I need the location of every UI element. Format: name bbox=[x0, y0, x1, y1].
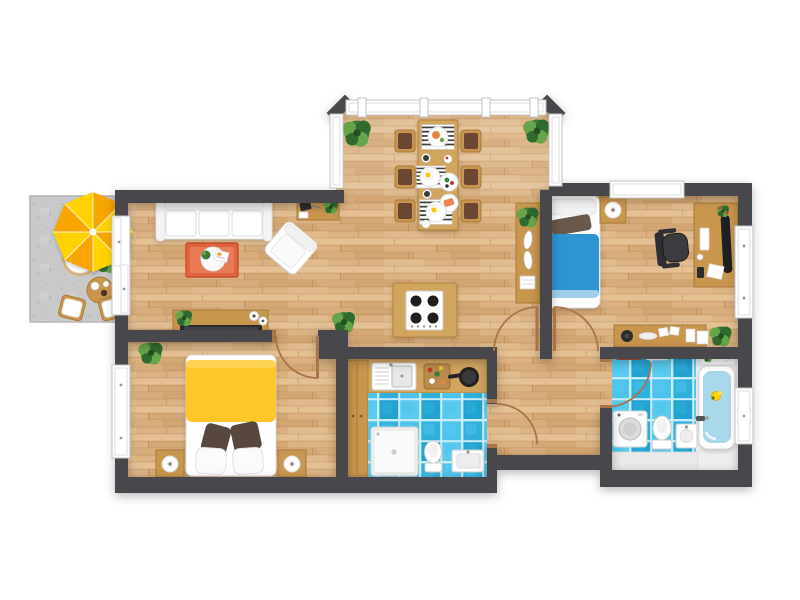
bathroom bbox=[612, 351, 738, 472]
window-mullion bbox=[358, 98, 366, 117]
shower-cabin bbox=[371, 427, 418, 476]
toilet-tank bbox=[425, 463, 442, 472]
washer-knob bbox=[618, 414, 621, 417]
wall-bathroom-top bbox=[600, 347, 752, 359]
washing-machine bbox=[613, 411, 647, 447]
sofa-cushion bbox=[199, 211, 229, 236]
blue-blanket bbox=[547, 234, 599, 298]
wall-shower-right-lower bbox=[487, 444, 497, 477]
wall-hallway-bottom bbox=[497, 455, 612, 470]
bowl bbox=[444, 155, 452, 163]
phone bbox=[697, 267, 704, 278]
box bbox=[520, 276, 535, 289]
window-mullion bbox=[530, 98, 538, 117]
bay-window-left bbox=[330, 114, 343, 188]
bay-window-band bbox=[346, 98, 546, 117]
double-bed bbox=[186, 355, 276, 476]
dining-chair bbox=[395, 166, 415, 188]
parasol-pole bbox=[90, 229, 97, 236]
white-pillow bbox=[232, 447, 264, 475]
balcony-sliding-door bbox=[112, 216, 130, 315]
papers bbox=[707, 264, 724, 280]
tap bbox=[389, 363, 393, 367]
bedside-lamp bbox=[605, 202, 621, 218]
dining-chair bbox=[461, 166, 481, 188]
yellow-blanket bbox=[186, 360, 276, 422]
coffee-cup bbox=[424, 191, 430, 197]
sofa-cushion bbox=[232, 211, 262, 236]
dining-chair bbox=[395, 130, 415, 152]
tap bbox=[466, 450, 469, 453]
sofa bbox=[156, 197, 272, 241]
bed-pillow-white bbox=[550, 199, 596, 215]
door-leaf bbox=[316, 336, 319, 378]
door-jamb bbox=[487, 444, 497, 448]
door-handle bbox=[118, 241, 121, 244]
box bbox=[669, 326, 679, 335]
white-pillow bbox=[195, 447, 227, 475]
box bbox=[658, 327, 668, 336]
dining-chair bbox=[395, 200, 415, 222]
note-paper bbox=[299, 212, 308, 218]
shower-drain bbox=[391, 449, 396, 454]
door-jamb bbox=[487, 399, 497, 403]
shower-head bbox=[376, 432, 379, 435]
wall-living-bedroom bbox=[115, 330, 276, 342]
bowl bbox=[422, 220, 430, 228]
bathtub bbox=[696, 366, 735, 449]
wall-bedroom-kitchen bbox=[336, 359, 348, 477]
door-jamb bbox=[600, 405, 612, 408]
window-bedroom-right-top bbox=[610, 181, 684, 198]
coffee-cup bbox=[423, 155, 429, 161]
book bbox=[686, 329, 695, 342]
window-bathroom bbox=[735, 388, 753, 444]
plate-salad bbox=[440, 173, 458, 191]
cutting-board bbox=[424, 364, 450, 389]
tap bbox=[685, 425, 688, 428]
sofa-armrest bbox=[156, 197, 165, 241]
dining-table-group bbox=[417, 120, 458, 230]
wall-corner-block bbox=[318, 330, 348, 359]
wall-top-left bbox=[115, 190, 344, 203]
cup bbox=[103, 281, 109, 287]
cup bbox=[91, 282, 99, 290]
bedside-lamp bbox=[284, 456, 300, 472]
wall-bathroom-bottom bbox=[600, 470, 752, 487]
shower-room bbox=[368, 393, 487, 477]
door-jamb bbox=[272, 330, 276, 342]
door-leaf bbox=[536, 307, 539, 351]
door-leaf bbox=[553, 307, 556, 351]
toilet bbox=[425, 441, 443, 472]
kitchen-counter-group bbox=[368, 359, 487, 393]
door-jamb bbox=[600, 359, 612, 362]
kitchen-island-group bbox=[393, 283, 457, 337]
wall-kitchen-top bbox=[348, 347, 495, 359]
window-mullion bbox=[420, 98, 428, 117]
bathroom-floor-strip bbox=[612, 452, 698, 472]
bay-window-right bbox=[549, 114, 562, 186]
window-bedroom-right-side bbox=[735, 226, 753, 318]
platter bbox=[639, 332, 657, 339]
single-bed bbox=[546, 196, 600, 308]
hallway-floor bbox=[497, 347, 600, 455]
floor-plan bbox=[0, 0, 800, 600]
sofa-cushion bbox=[166, 211, 196, 236]
door-handle bbox=[123, 288, 126, 291]
cooktop bbox=[406, 291, 443, 330]
keyboard bbox=[700, 228, 709, 250]
wall-sink bbox=[452, 450, 484, 472]
coffee-cup bbox=[101, 290, 107, 296]
floor-plan-canvas bbox=[0, 0, 800, 600]
bath-faucet bbox=[696, 416, 705, 421]
dining-chair bbox=[461, 200, 481, 222]
wall-divider bbox=[540, 190, 552, 359]
toilet-tank bbox=[652, 440, 672, 449]
mouse bbox=[697, 254, 703, 260]
window-bedroom-left bbox=[112, 365, 130, 458]
console-shelf bbox=[516, 203, 540, 303]
decor-sideboard bbox=[614, 325, 708, 347]
dining-chair bbox=[461, 130, 481, 152]
bathroom-sink bbox=[676, 424, 697, 448]
chair-seat bbox=[662, 232, 690, 262]
wall-shower-right-upper bbox=[487, 347, 497, 404]
wall-bottom-left bbox=[115, 477, 497, 493]
bedside-lamp bbox=[162, 456, 178, 472]
toilet bbox=[652, 416, 672, 449]
office-desk bbox=[694, 203, 738, 287]
sofa-armrest bbox=[263, 197, 272, 241]
window-mullion bbox=[482, 98, 490, 117]
box bbox=[697, 331, 708, 344]
